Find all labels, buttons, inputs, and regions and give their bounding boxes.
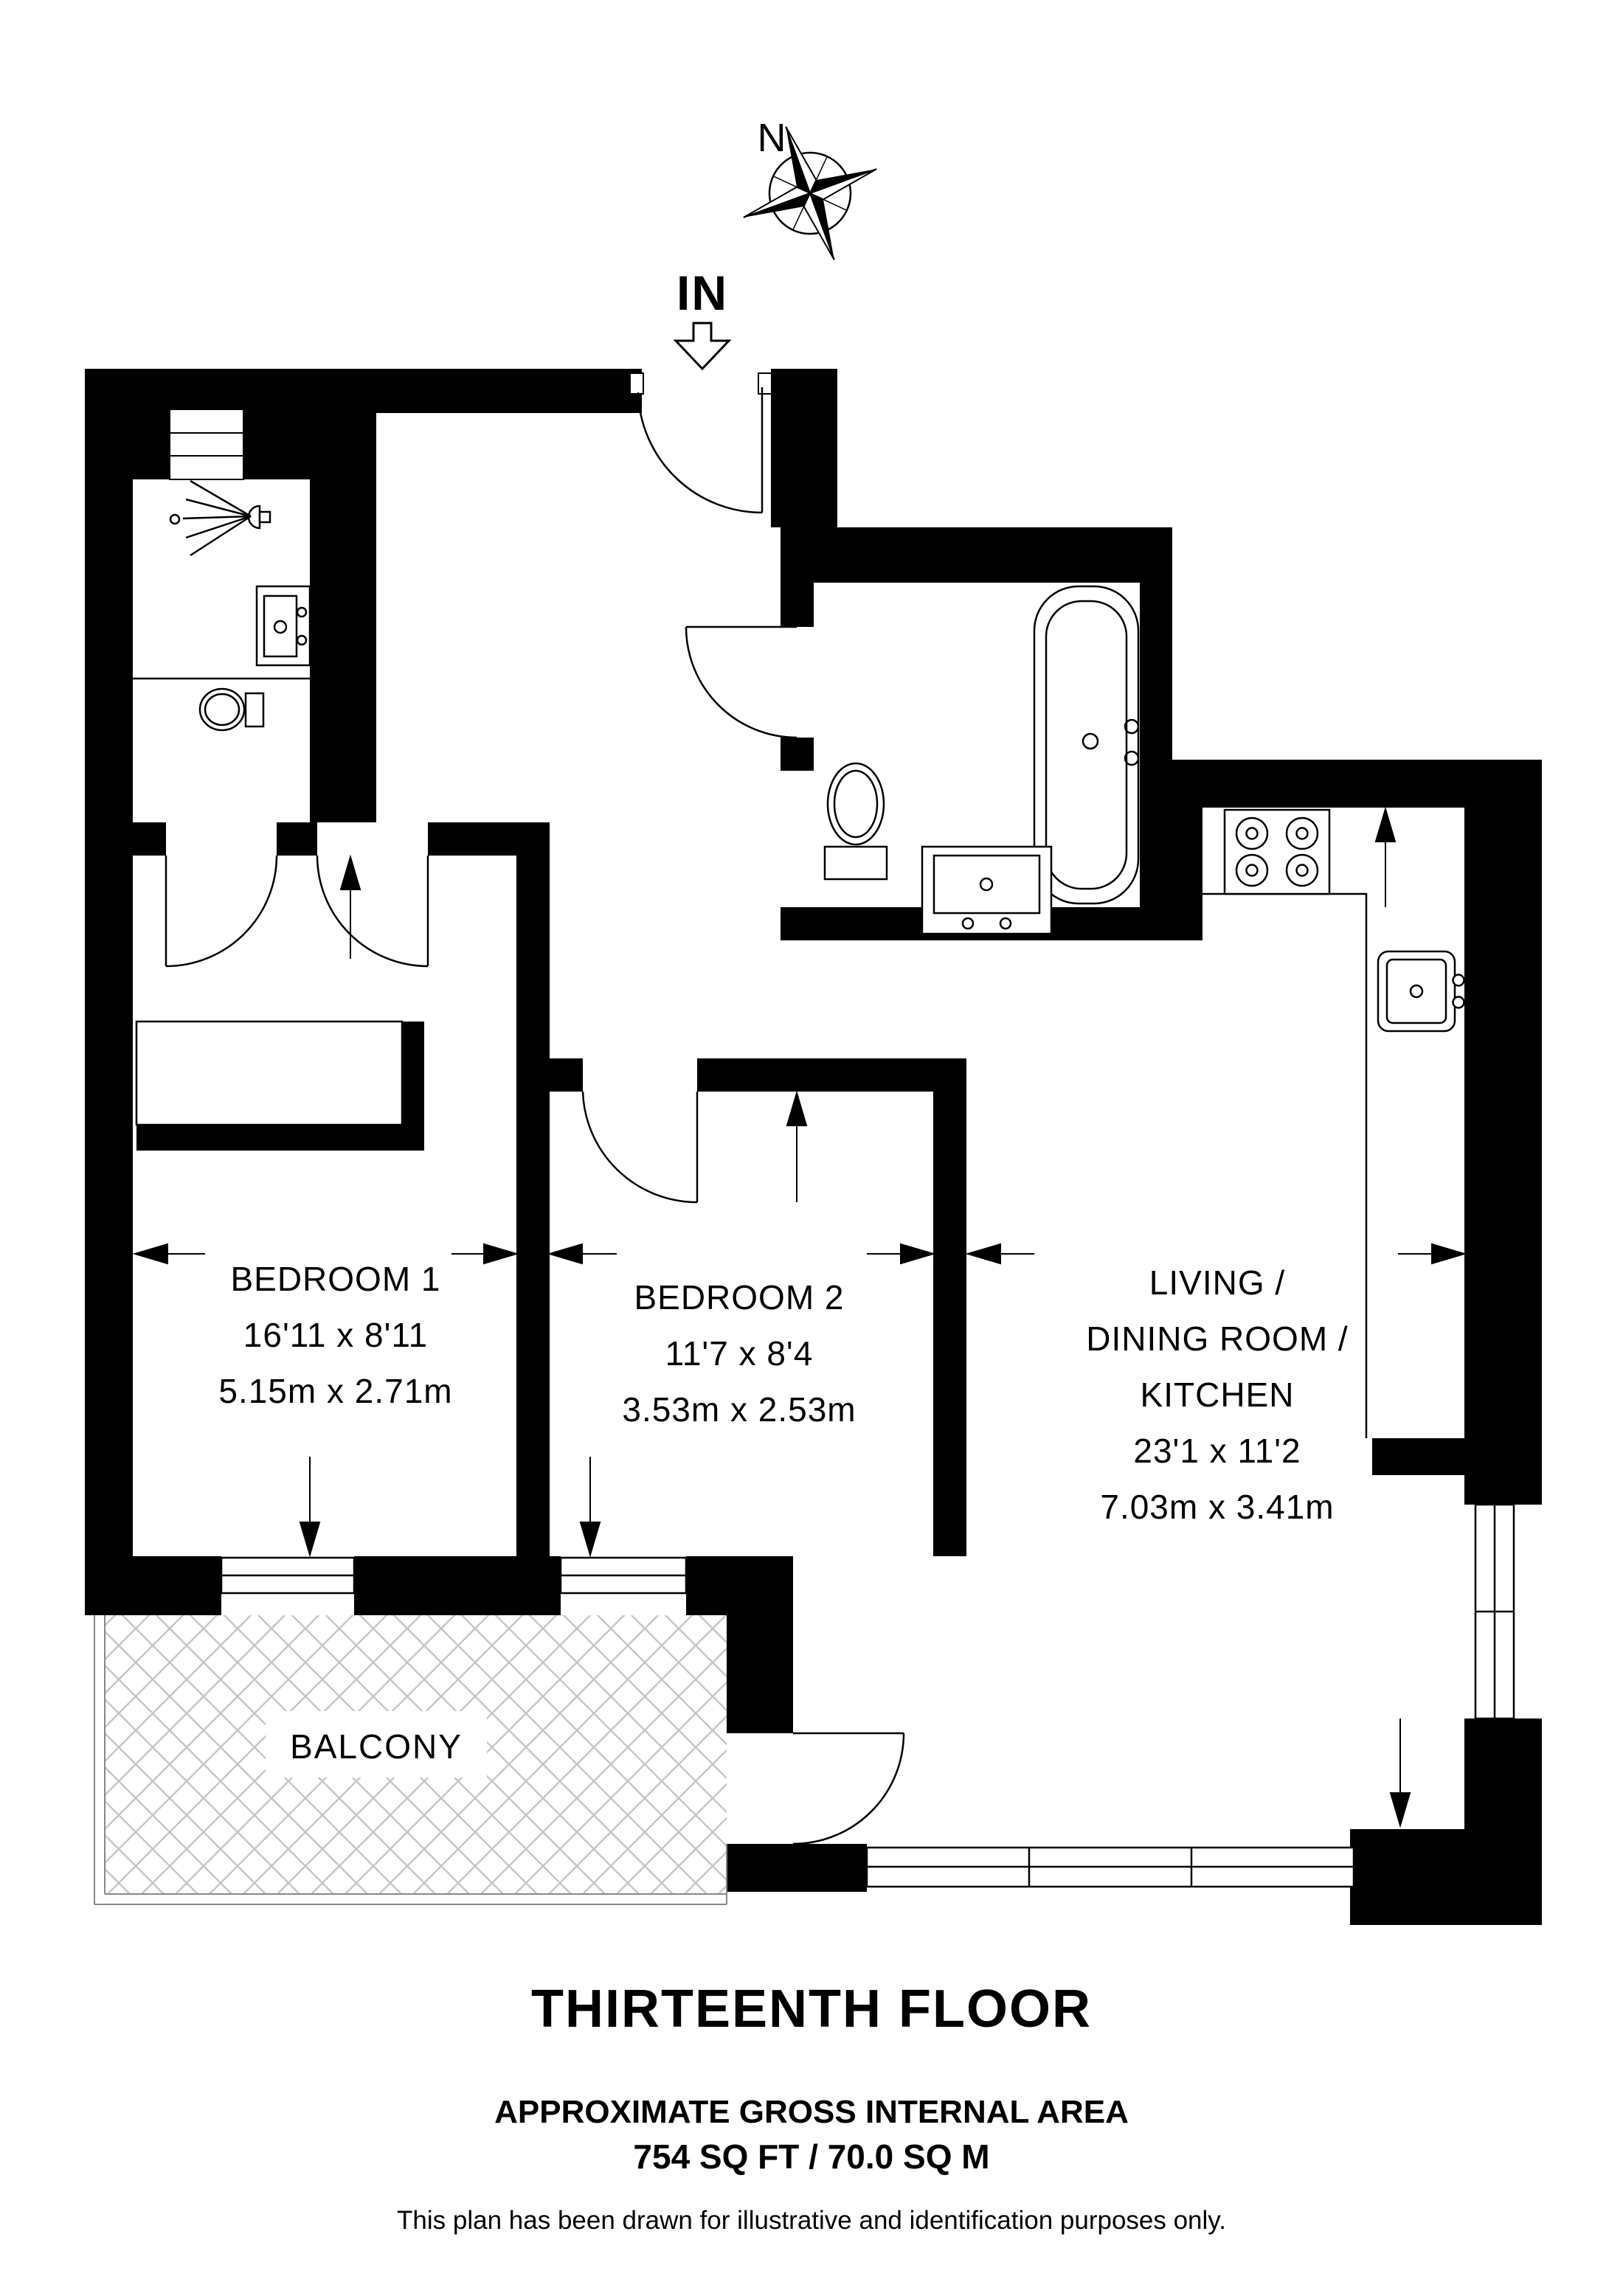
bedroom1-dims-metric: 5.15m x 2.71m xyxy=(218,1372,452,1410)
compass-rose-icon: N xyxy=(719,103,901,284)
entry-steps xyxy=(170,409,243,479)
balcony-door xyxy=(793,1733,904,1844)
compass-north-label: N xyxy=(758,116,786,160)
living-label: LIVING / DINING ROOM / KITCHEN 23'1 x 11… xyxy=(1086,1263,1348,1526)
bedroom1-dims-imperial: 16'11 x 8'11 xyxy=(243,1316,428,1354)
bedroom2-dims-metric: 3.53m x 2.53m xyxy=(622,1390,856,1429)
living-dims-metric: 7.03m x 3.41m xyxy=(1100,1488,1334,1526)
ensuite-door xyxy=(166,856,277,966)
area-heading: APPROXIMATE GROSS INTERNAL AREA xyxy=(494,2094,1129,2130)
bathroom-door xyxy=(686,627,797,738)
wall-kitchen-top xyxy=(1172,760,1542,808)
bedroom2-name: BEDROOM 2 xyxy=(634,1278,844,1317)
ensuite-basin-icon xyxy=(257,586,310,665)
toilet-icon xyxy=(825,763,887,879)
bedroom1-label: BEDROOM 1 16'11 x 8'11 5.15m x 2.71m xyxy=(218,1260,452,1410)
floor-title: THIRTEENTH FLOOR xyxy=(531,1980,1092,2039)
wall-ensuite-right xyxy=(310,479,376,822)
kitchen-sink-icon xyxy=(1378,951,1464,1031)
bedroom2-dims-imperial: 11'7 x 8'4 xyxy=(665,1334,814,1373)
living-name-1: LIVING / xyxy=(1149,1263,1285,1302)
ensuite-toilet-icon xyxy=(200,689,263,730)
wardrobe xyxy=(136,1022,424,1151)
bedroom2-label: BEDROOM 2 11'7 x 8'4 3.53m x 2.53m xyxy=(622,1278,856,1429)
floorplan-drawing: N IN xyxy=(0,0,1623,2296)
footer: THIRTEENTH FLOOR APPROXIMATE GROSS INTER… xyxy=(397,1980,1226,2235)
shower-icon xyxy=(170,481,270,555)
bedroom2-window xyxy=(561,1558,686,1593)
entry-door xyxy=(630,373,772,513)
wall-left xyxy=(85,369,133,1556)
wall-right-upper xyxy=(1464,808,1542,1505)
bedroom1-name: BEDROOM 1 xyxy=(230,1260,440,1298)
room-labels: BEDROOM 1 16'11 x 8'11 5.15m x 2.71m BED… xyxy=(218,1260,1348,1526)
wall-bathroom-top xyxy=(781,527,1172,583)
wall-bottom-right-corner xyxy=(1350,1829,1542,1925)
wall-bathroom-right xyxy=(1140,527,1172,940)
wall-bedroom2-top xyxy=(697,1058,966,1092)
balcony: BALCONY xyxy=(94,1615,727,1904)
ensuite xyxy=(133,481,310,730)
entrance-in-label: IN xyxy=(676,266,728,320)
wall-bedroom-divider xyxy=(516,856,550,1556)
entry-arrow-icon xyxy=(676,323,729,369)
bedroom1-door xyxy=(317,856,428,966)
wall-right-lower xyxy=(1464,1718,1542,1844)
living-name-3: KITCHEN xyxy=(1141,1376,1295,1414)
living-dims-imperial: 23'1 x 11'2 xyxy=(1133,1432,1301,1470)
wall-balcony-end-column xyxy=(727,1556,793,1733)
bathroom xyxy=(825,586,1138,934)
wall-bedroom2-right xyxy=(933,1058,966,1556)
basin-icon xyxy=(922,847,1051,934)
balcony-label: BALCONY xyxy=(290,1727,463,1766)
living-room-south-window xyxy=(867,1848,1354,1887)
bedroom1-window xyxy=(221,1558,354,1593)
living-room-east-window xyxy=(1475,1505,1514,1718)
living-name-2: DINING ROOM / xyxy=(1086,1319,1348,1358)
disclaimer-text: This plan has been drawn for illustrativ… xyxy=(397,2206,1226,2235)
hob-icon xyxy=(1225,810,1329,894)
bedroom2-door xyxy=(583,1092,697,1202)
floorplan-page: N IN xyxy=(0,0,1623,2296)
area-value: 754 SQ FT / 70.0 SQ M xyxy=(633,2137,989,2176)
wall-top xyxy=(85,369,642,413)
